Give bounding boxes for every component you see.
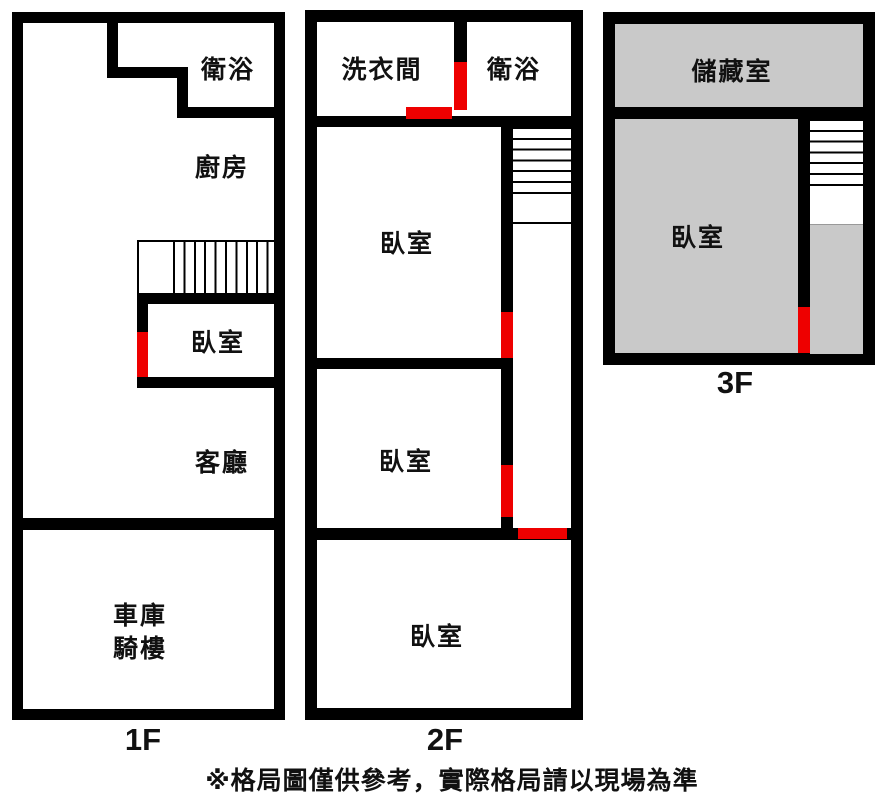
door-marker [798,307,810,353]
wall [177,77,188,118]
wall [188,107,285,118]
room-label-bedroom3-2f: 臥室 [410,617,464,653]
stair-landing-area [810,224,863,354]
room-label-living: 客廳 [195,443,249,479]
wall [305,358,513,369]
door-marker [406,107,452,119]
room-label-bedroom2-2f: 臥室 [379,442,433,478]
floor-label-1f: 1F [125,722,161,758]
staircase [810,119,863,353]
room-label-garage: 車庫 騎樓 [113,600,167,666]
floor-label-2f: 2F [427,722,463,758]
disclaimer-text: ※格局圖僅供參考，實際格局請以現場為準 [205,761,698,797]
staircase [137,240,274,293]
wall [603,107,875,119]
wall [137,293,285,304]
stair-landing-line [513,222,571,224]
wall [12,518,285,530]
door-marker [501,465,513,517]
wall [107,67,188,78]
garage-line-1: 車庫 [113,600,167,633]
room-label-bedroom-1f: 臥室 [191,323,245,359]
stair-treads [810,119,863,187]
wall [798,119,810,307]
stair-treads [173,242,276,295]
staircase [513,127,571,227]
floor-plan: 衛浴 廚房 臥室 客廳 車庫 騎樓 1F 洗衣間 衛浴 臥室 臥室 臥室 2F [0,0,889,806]
room-label-kitchen: 廚房 [195,148,249,184]
garage-line-2: 騎樓 [113,633,167,666]
room-label-bathroom-1f: 衛浴 [201,50,255,86]
door-marker [137,332,148,378]
door-marker [501,312,513,360]
room-label-bedroom-3f: 臥室 [671,218,725,254]
room-label-storage: 儲藏室 [691,52,772,88]
stair-treads [513,127,571,195]
room-label-bathroom-2f: 衛浴 [487,50,541,86]
floor-label-3f: 3F [717,365,753,401]
wall [454,10,467,62]
wall [137,304,148,334]
room-label-laundry: 洗衣間 [341,50,422,86]
room-label-bedroom1-2f: 臥室 [380,224,434,260]
door-marker [518,528,567,539]
wall [137,377,285,388]
door-marker [454,62,467,110]
